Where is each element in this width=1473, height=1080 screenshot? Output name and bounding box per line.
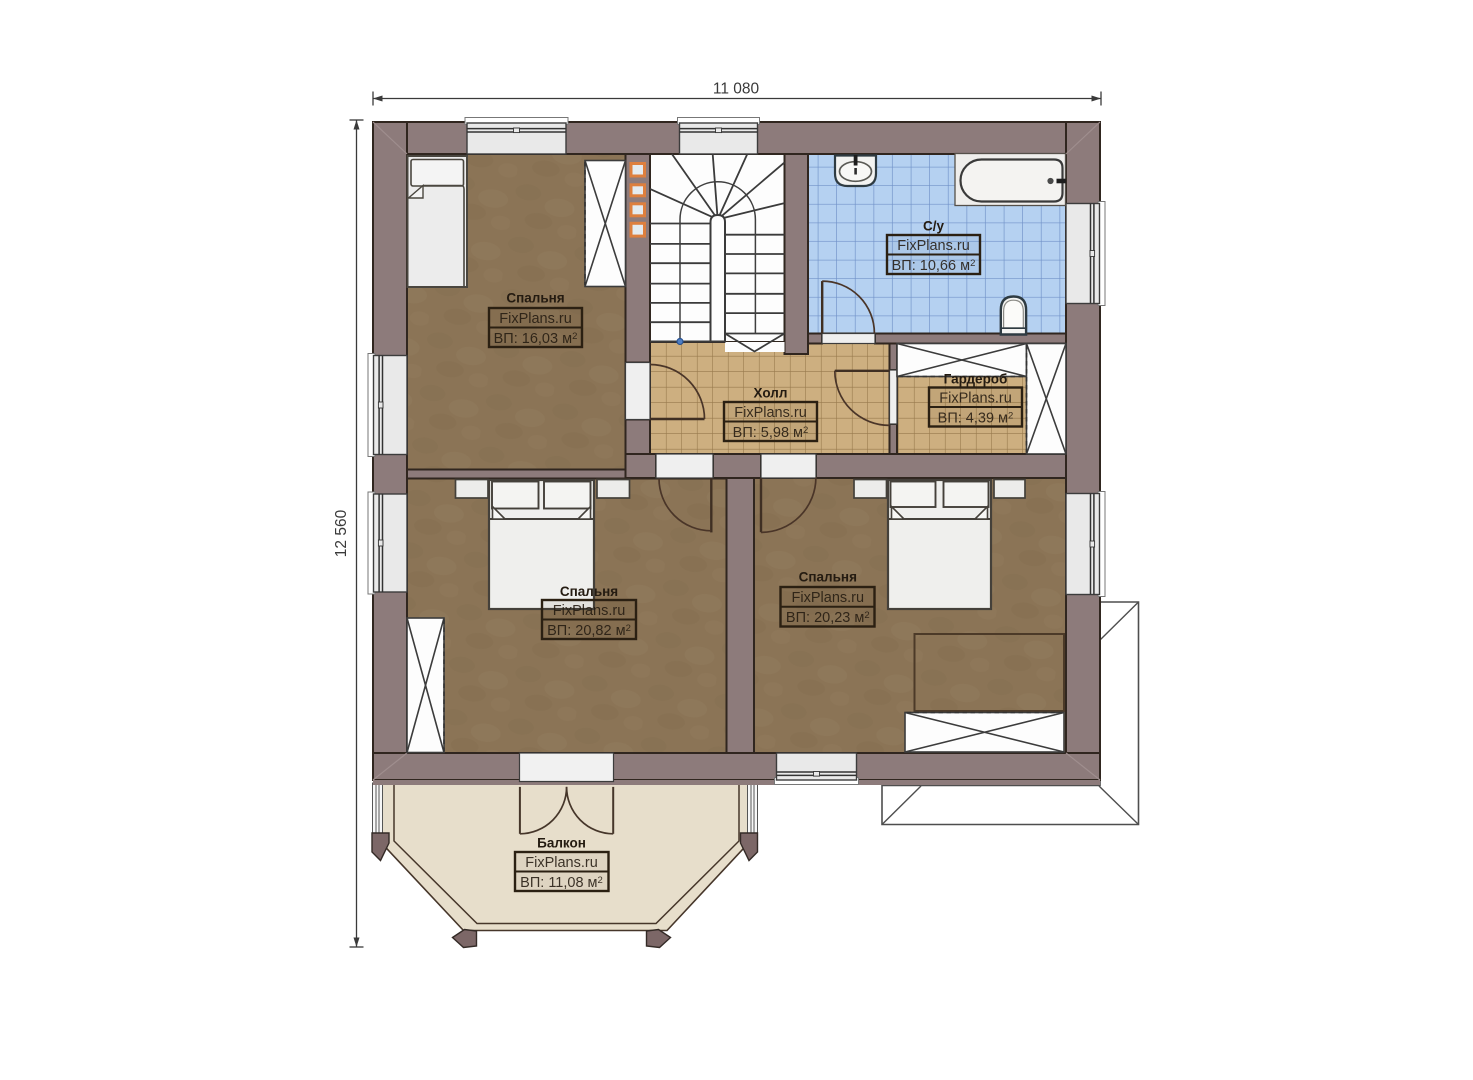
svg-text:ВП: 20,82 м2: ВП: 20,82 м2 <box>547 623 631 639</box>
svg-text:Спальня: Спальня <box>506 290 564 305</box>
svg-text:Холл: Холл <box>754 386 788 401</box>
svg-text:FixPlans.ru: FixPlans.ru <box>792 590 865 606</box>
svg-text:Балкон: Балкон <box>537 836 586 851</box>
svg-text:ВП: 20,23 м2: ВП: 20,23 м2 <box>786 610 870 626</box>
svg-text:12 560: 12 560 <box>333 509 350 557</box>
svg-text:FixPlans.ru: FixPlans.ru <box>734 405 807 421</box>
svg-text:ВП: 16,03 м2: ВП: 16,03 м2 <box>494 331 578 347</box>
svg-text:FixPlans.ru: FixPlans.ru <box>553 603 626 619</box>
svg-text:Спальня: Спальня <box>799 570 857 585</box>
svg-text:Гардероб: Гардероб <box>944 372 1008 387</box>
svg-text:FixPlans.ru: FixPlans.ru <box>499 311 572 327</box>
svg-text:FixPlans.ru: FixPlans.ru <box>525 855 598 871</box>
svg-text:ВП: 5,98 м2: ВП: 5,98 м2 <box>733 425 809 441</box>
svg-text:FixPlans.ru: FixPlans.ru <box>939 390 1012 406</box>
svg-text:Спальня: Спальня <box>560 584 618 599</box>
svg-text:ВП: 4,39 м2: ВП: 4,39 м2 <box>938 410 1014 426</box>
svg-text:11 080: 11 080 <box>713 81 760 98</box>
svg-text:ВП: 10,66 м2: ВП: 10,66 м2 <box>892 258 976 274</box>
svg-text:FixPlans.ru: FixPlans.ru <box>897 238 970 254</box>
svg-text:С/у: С/у <box>923 219 945 234</box>
svg-text:ВП: 11,08 м2: ВП: 11,08 м2 <box>520 875 603 891</box>
